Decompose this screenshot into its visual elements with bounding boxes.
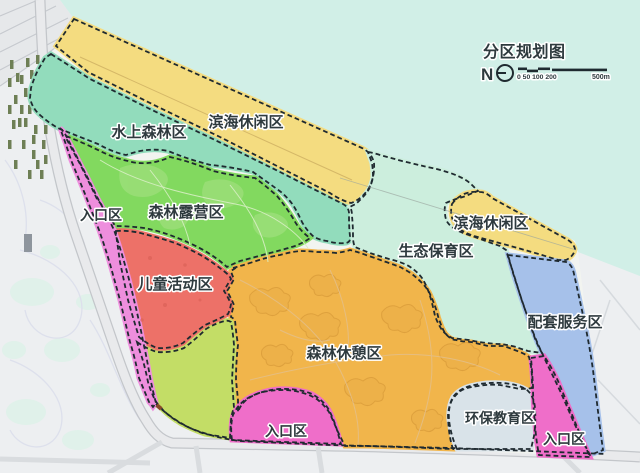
svg-text:0 50 100 200: 0 50 100 200 — [517, 74, 557, 81]
svg-text:配套服务区: 配套服务区 — [527, 313, 602, 331]
svg-text:N: N — [481, 65, 493, 84]
svg-text:环保教育区: 环保教育区 — [465, 410, 535, 426]
svg-text:水上森林区: 水上森林区 — [111, 123, 186, 141]
svg-text:滨海休闲区: 滨海休闲区 — [208, 113, 283, 131]
svg-text:儿童活动区: 儿童活动区 — [136, 275, 212, 293]
svg-text:滨海休闲区: 滨海休闲区 — [453, 214, 528, 232]
svg-text:入口区: 入口区 — [543, 431, 585, 447]
svg-text:入口区: 入口区 — [265, 423, 307, 439]
svg-text:分区规划图: 分区规划图 — [483, 42, 566, 61]
svg-text:500m: 500m — [592, 74, 610, 81]
svg-text:森林休憩区: 森林休憩区 — [306, 344, 381, 362]
svg-text:入口区: 入口区 — [80, 207, 122, 223]
svg-text:生态保育区: 生态保育区 — [398, 242, 473, 260]
svg-text:森林露营区: 森林露营区 — [148, 203, 223, 221]
